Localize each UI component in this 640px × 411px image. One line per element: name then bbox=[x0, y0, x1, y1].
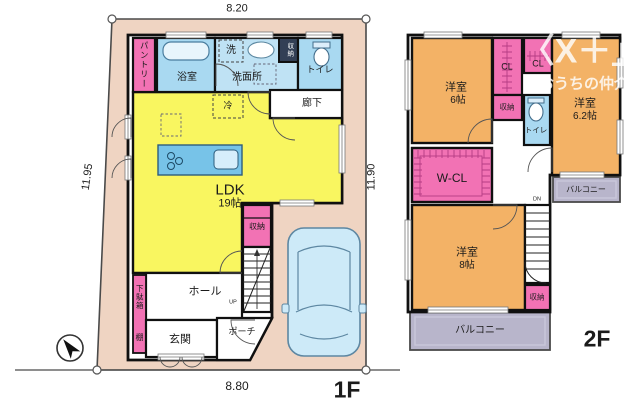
storage-bottom-box bbox=[525, 285, 550, 310]
room-hall bbox=[146, 273, 242, 320]
closet-left bbox=[493, 38, 522, 95]
storage-top-box bbox=[279, 38, 298, 62]
room-corridor bbox=[270, 90, 342, 118]
room-entrance bbox=[146, 320, 217, 357]
floorplan-graphics bbox=[0, 0, 640, 411]
stairs-up bbox=[243, 247, 271, 312]
car-top-view bbox=[282, 228, 366, 356]
stairs-down bbox=[525, 205, 550, 283]
room-6jo bbox=[412, 38, 492, 143]
toilet-icon-1f bbox=[313, 42, 330, 66]
north-arrow-icon bbox=[57, 335, 83, 361]
stair-storage-box bbox=[243, 205, 271, 247]
bathtub-icon bbox=[163, 42, 209, 60]
shoe-cabinet-box bbox=[133, 275, 146, 353]
balcony-bottom bbox=[410, 312, 550, 350]
room-pantry bbox=[133, 38, 155, 92]
room-62jo bbox=[552, 38, 620, 175]
closet-right bbox=[524, 38, 552, 73]
sink-icon bbox=[214, 150, 238, 169]
kitchen-island bbox=[158, 145, 242, 175]
room-8jo bbox=[412, 205, 525, 310]
washbasin-icon bbox=[248, 42, 274, 58]
toilet-icon-2f bbox=[528, 98, 544, 121]
storage-mid-box bbox=[493, 95, 522, 120]
floorplan-image: 8.20 11.95 11.90 8.80 1F パントリー 浴室 洗 洗面所 … bbox=[0, 0, 640, 411]
